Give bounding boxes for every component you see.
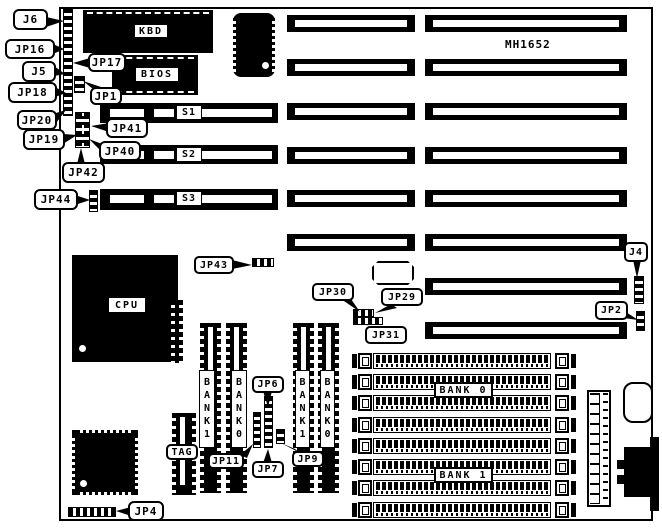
- callout-jp20: JP20: [17, 110, 57, 130]
- isa-slot-segment: [425, 190, 627, 207]
- cache-bank1-label: BANK1: [295, 370, 310, 448]
- simm-left-clip: [358, 459, 372, 475]
- slot-s3: S3: [100, 189, 278, 210]
- simm-solder-dots: [376, 406, 548, 409]
- simm-socket: [373, 502, 551, 518]
- simm-contacts: [376, 482, 548, 490]
- keyboard-connector-tab: [617, 460, 625, 469]
- callout-jp17: JP17: [88, 53, 126, 72]
- isa-slot-segment: [287, 15, 415, 32]
- simm-solder-dots: [376, 364, 548, 367]
- simm-right-clip: [555, 438, 569, 454]
- chipset-pin1-dot: [262, 62, 269, 69]
- callout-jp43: JP43: [194, 256, 234, 274]
- callout-jp29: JP29: [381, 288, 423, 306]
- din-connector-outline: [623, 382, 653, 423]
- qfp-pins-top: [77, 430, 133, 433]
- callout-jp19: JP19: [23, 129, 65, 150]
- qfp-pin1-dot: [80, 480, 87, 487]
- cache-bank1-label: BANK1: [199, 370, 215, 448]
- chipset-pins-left: [233, 18, 236, 72]
- simm-right-clip: [555, 480, 569, 496]
- simm-left-clip: [358, 353, 372, 369]
- callout-jp2: JP2: [595, 301, 628, 320]
- isa-slot-segment: [287, 59, 415, 76]
- simm-left-post: [352, 503, 357, 517]
- slot-s1-gap: [144, 109, 154, 117]
- simm-left-post: [352, 460, 357, 474]
- callout-j5: J5: [22, 61, 56, 82]
- callout-j4: J4: [624, 242, 648, 262]
- power-connector-pins: [590, 393, 600, 504]
- simm-socket: [373, 353, 551, 369]
- jp43-header: [252, 258, 274, 267]
- cache-chip-body: [175, 300, 179, 363]
- crystal-oscillator: [372, 261, 414, 285]
- isa-slot-segment: [287, 147, 415, 164]
- simm-left-clip: [358, 480, 372, 496]
- simm-right-post: [571, 396, 576, 410]
- isa-slot-segment: [425, 322, 627, 339]
- simm-contacts: [376, 397, 548, 405]
- simm-bank1-label: BANK 1: [434, 467, 493, 483]
- simm-right-clip: [555, 353, 569, 369]
- keyboard-connector: [624, 447, 653, 497]
- bios-chip-label: BIOS: [135, 67, 179, 82]
- isa-slot-segment: [425, 278, 627, 295]
- qfp-pins-bottom: [77, 492, 133, 495]
- chipset-pins-right: [272, 18, 275, 72]
- callout-jp18: JP18: [8, 82, 57, 103]
- callout-jp4: JP4: [128, 501, 164, 521]
- simm-left-post: [352, 439, 357, 453]
- simm-left-clip: [358, 417, 372, 433]
- jp31-header: [353, 317, 383, 325]
- simm-left-post: [352, 481, 357, 495]
- cache-chip-column: [171, 300, 183, 363]
- jp1-header: [74, 76, 85, 93]
- callout-jp1: JP1: [90, 87, 122, 105]
- isa-slot-segment: [425, 15, 627, 32]
- simm-right-clip: [555, 502, 569, 518]
- j4-header: [634, 276, 644, 304]
- jp6-jp7-header: [264, 396, 273, 448]
- callout-jp44: JP44: [34, 189, 78, 210]
- isa-slot-segment: [425, 147, 627, 164]
- simm-left-clip: [358, 502, 372, 518]
- simm-solder-dots: [376, 449, 548, 452]
- cache-bank0-label: BANK0: [231, 370, 247, 448]
- simm-bank0-label: BANK 0: [434, 382, 493, 398]
- isa-slot-segment: [287, 234, 415, 251]
- simm-solder-dots: [376, 513, 548, 516]
- simm-right-clip: [555, 374, 569, 390]
- simm-right-post: [571, 460, 576, 474]
- slot-s3-gap: [144, 195, 154, 203]
- simm-contacts: [376, 355, 548, 363]
- simm-left-post: [352, 418, 357, 432]
- slot-s1-label: S1: [176, 105, 202, 120]
- board-model: MH1652: [505, 38, 551, 51]
- callout-jp42: JP42: [62, 162, 105, 183]
- jp29-jp30-header: [353, 309, 374, 317]
- keyboard-connector-tab: [617, 475, 625, 484]
- motherboard-diagram: MH1652 KBD BIOS CPU S1 S2 S3: [0, 0, 662, 528]
- qfp-pins-right: [135, 435, 138, 490]
- callout-jp30: JP30: [312, 283, 354, 301]
- cpu-pin1-dot: [79, 345, 86, 352]
- slot-s3-label: S3: [176, 191, 202, 206]
- jp11-header: [253, 412, 261, 448]
- isa-slot-segment: [425, 59, 627, 76]
- slot-s2-label: S2: [176, 147, 202, 162]
- callout-jp11: JP11: [208, 453, 244, 469]
- callout-j6: J6: [13, 9, 48, 30]
- jp40-jp41-jp42-block: [75, 112, 90, 148]
- simm-left-clip: [358, 438, 372, 454]
- simm-left-clip: [358, 395, 372, 411]
- tag-chip-label: TAG: [166, 444, 198, 460]
- simm-contacts: [376, 419, 548, 427]
- isa-slot-segment: [425, 234, 627, 251]
- callout-jp6: JP6: [252, 376, 284, 393]
- simm-right-post: [571, 375, 576, 389]
- simm-right-clip: [555, 459, 569, 475]
- keyboard-connector-bracket: [650, 437, 659, 511]
- simm-right-post: [571, 439, 576, 453]
- cache-bank0-label: BANK0: [320, 370, 335, 448]
- qfp-pins-left: [72, 435, 75, 490]
- callout-jp40: JP40: [99, 141, 141, 161]
- callout-jp16: JP16: [5, 39, 55, 59]
- simm-solder-dots: [376, 491, 548, 494]
- jp9-header: [276, 429, 285, 444]
- power-connector: [587, 390, 611, 507]
- simm-contacts: [376, 440, 548, 448]
- callout-jp41: JP41: [106, 118, 148, 138]
- slot-s2-gap: [144, 151, 154, 159]
- isa-slot-segment: [287, 103, 415, 120]
- cpu-chip-label: CPU: [108, 297, 146, 313]
- simm-right-clip: [555, 395, 569, 411]
- simm-socket: [373, 417, 551, 433]
- callout-jp9: JP9: [292, 451, 324, 467]
- simm-contacts: [376, 504, 548, 512]
- simm-left-clip: [358, 374, 372, 390]
- qfp-chip: [72, 430, 138, 495]
- power-connector-pins2: [603, 393, 608, 504]
- simm-left-post: [352, 396, 357, 410]
- callout-jp7: JP7: [252, 461, 284, 478]
- isa-slot-segment: [287, 190, 415, 207]
- simm-right-post: [571, 503, 576, 517]
- simm-right-post: [571, 418, 576, 432]
- isa-slot-segment: [425, 103, 627, 120]
- jp4-header: [68, 507, 116, 517]
- simm-right-post: [571, 481, 576, 495]
- simm-left-post: [352, 375, 357, 389]
- left-pin-header-strip: [63, 8, 73, 116]
- jp2-header: [636, 311, 645, 331]
- chipset-chip: [233, 13, 275, 77]
- simm-left-post: [352, 354, 357, 368]
- jp44-header: [89, 190, 98, 212]
- simm-right-clip: [555, 417, 569, 433]
- simm-right-post: [571, 354, 576, 368]
- simm-solder-dots: [376, 428, 548, 431]
- simm-socket: [373, 438, 551, 454]
- callout-jp31: JP31: [365, 326, 407, 344]
- kbd-chip-label: KBD: [134, 24, 168, 38]
